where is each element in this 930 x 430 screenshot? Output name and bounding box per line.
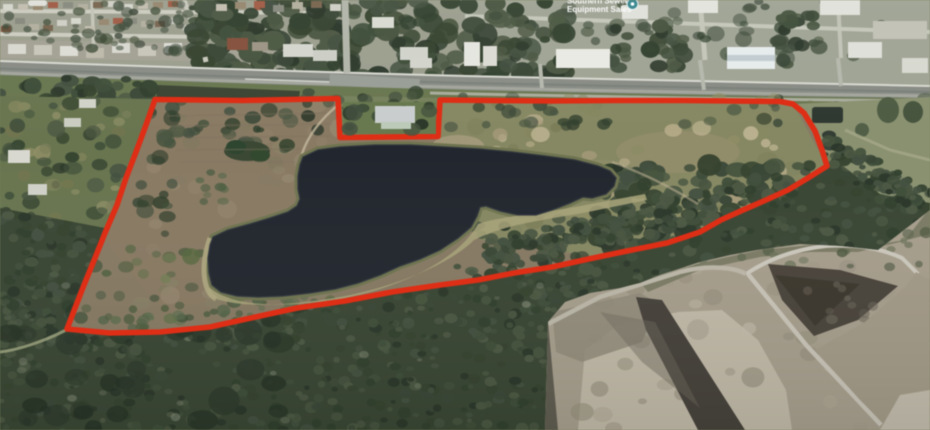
svg-text:Equipment Sales: Equipment Sales xyxy=(567,5,632,14)
